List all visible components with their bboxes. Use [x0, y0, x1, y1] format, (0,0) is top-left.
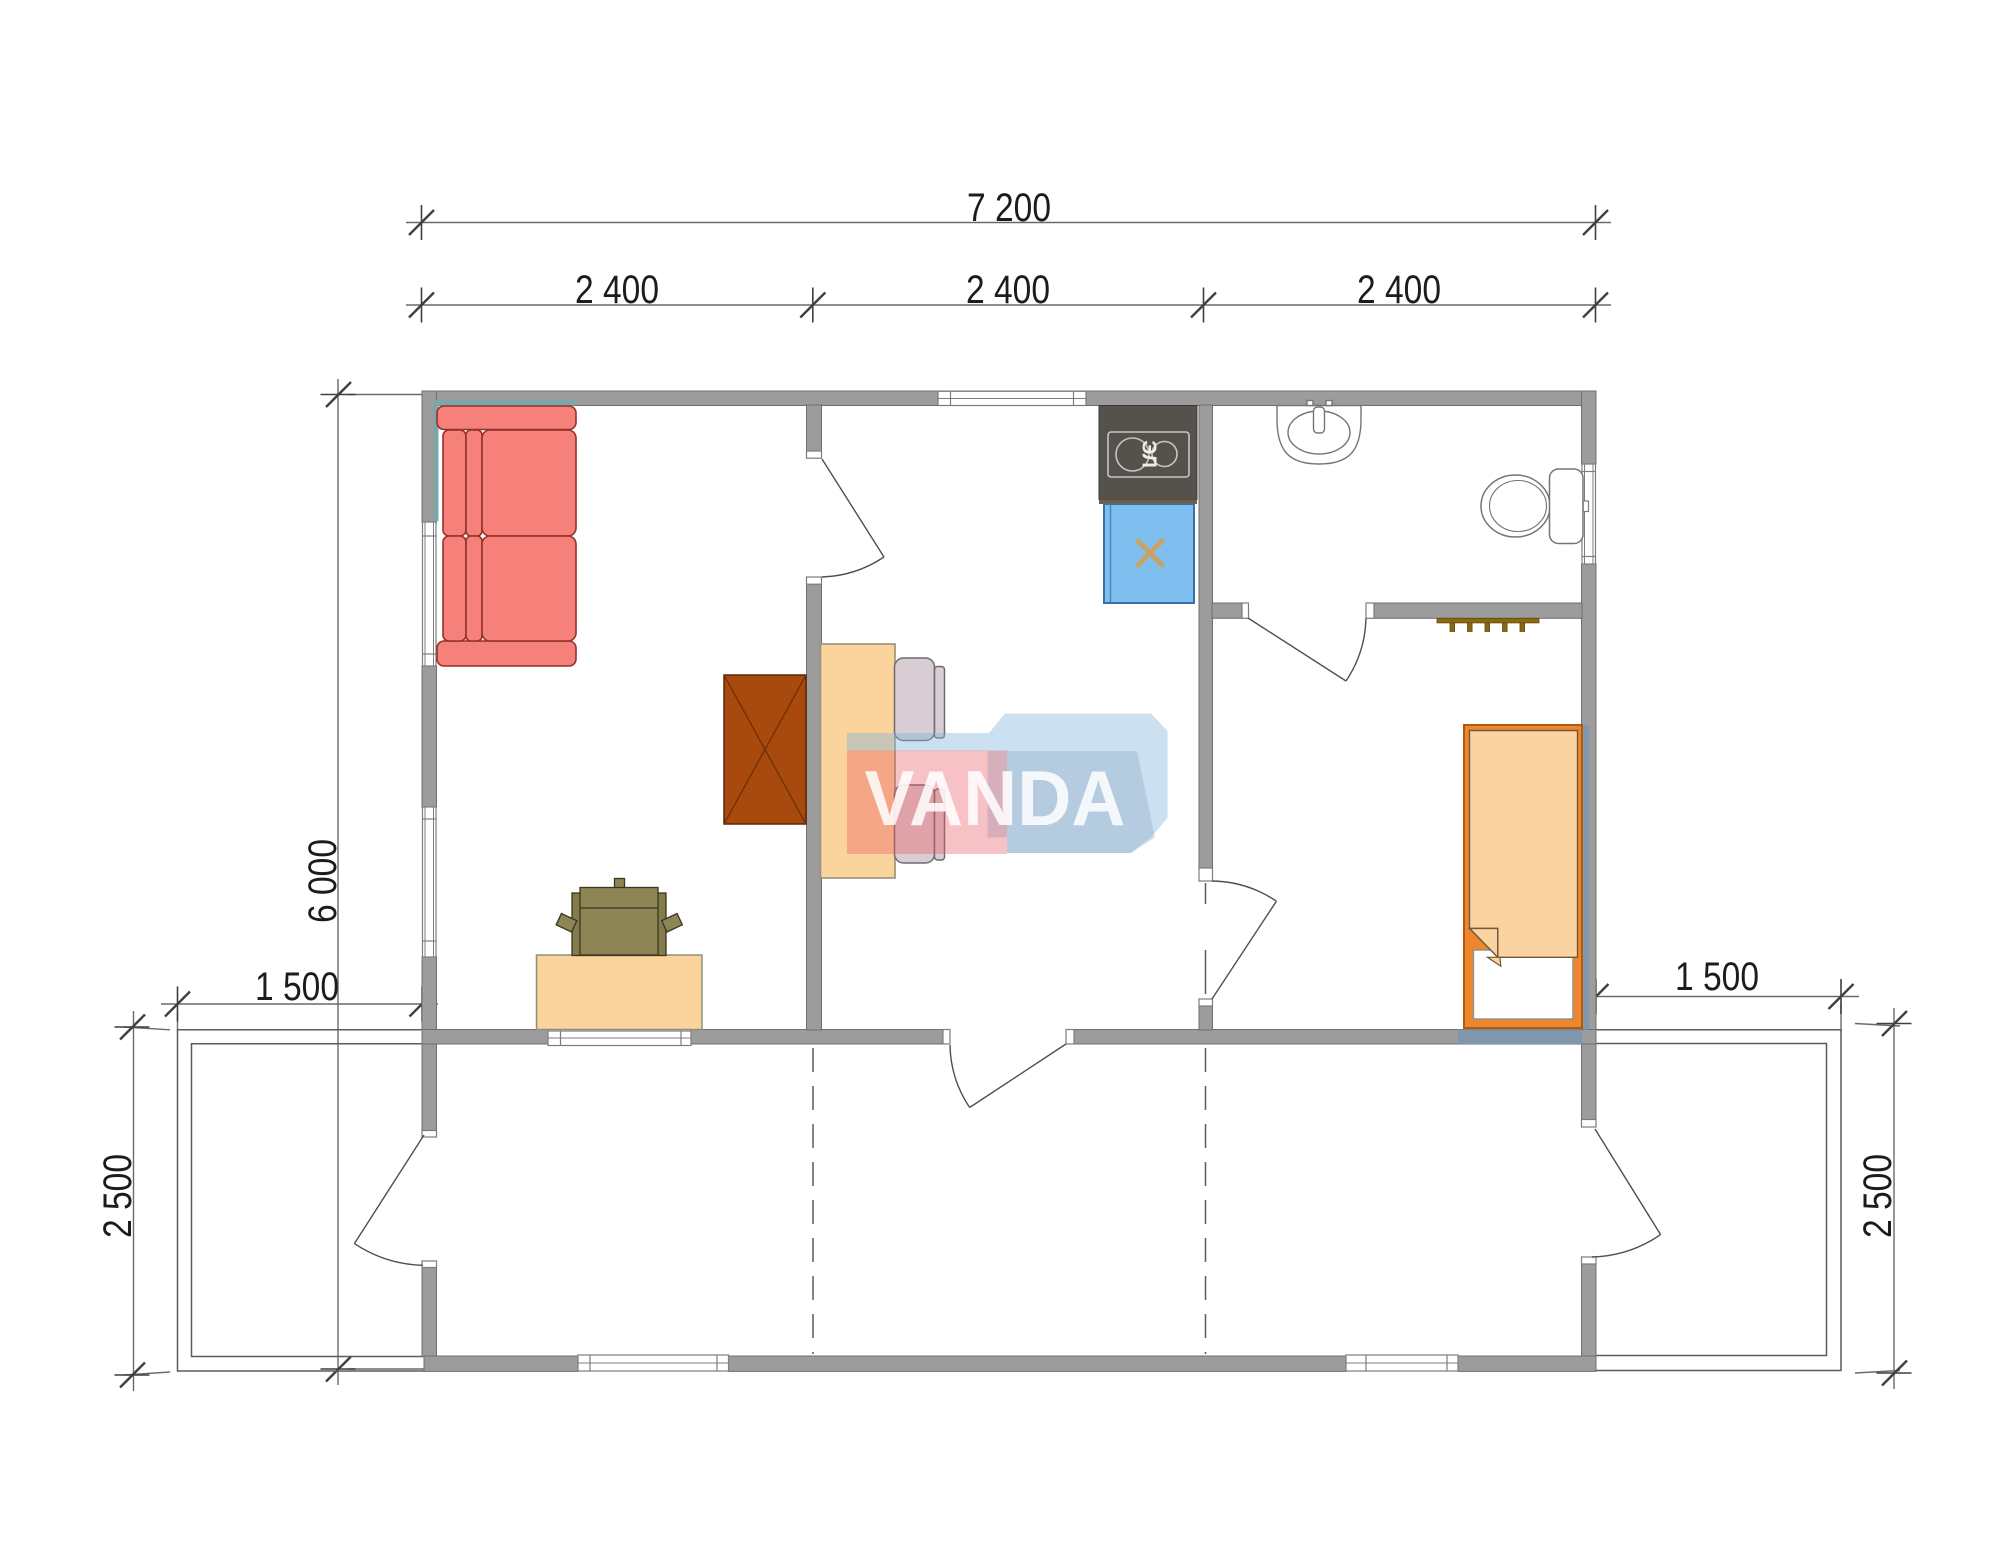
svg-text:2 500: 2 500 [96, 1154, 140, 1238]
svg-text:1 500: 1 500 [255, 965, 339, 1009]
svg-text:7 200: 7 200 [967, 186, 1051, 230]
svg-text:2 400: 2 400 [966, 268, 1050, 312]
svg-text:ЭЛ: ЭЛ [1138, 440, 1160, 468]
svg-text:2 400: 2 400 [575, 268, 659, 312]
svg-text:VANDA: VANDA [865, 754, 1126, 842]
svg-text:2 400: 2 400 [1357, 268, 1441, 312]
svg-text:2 500: 2 500 [1856, 1154, 1900, 1238]
svg-text:6 000: 6 000 [301, 839, 345, 923]
svg-text:1 500: 1 500 [1675, 955, 1759, 999]
